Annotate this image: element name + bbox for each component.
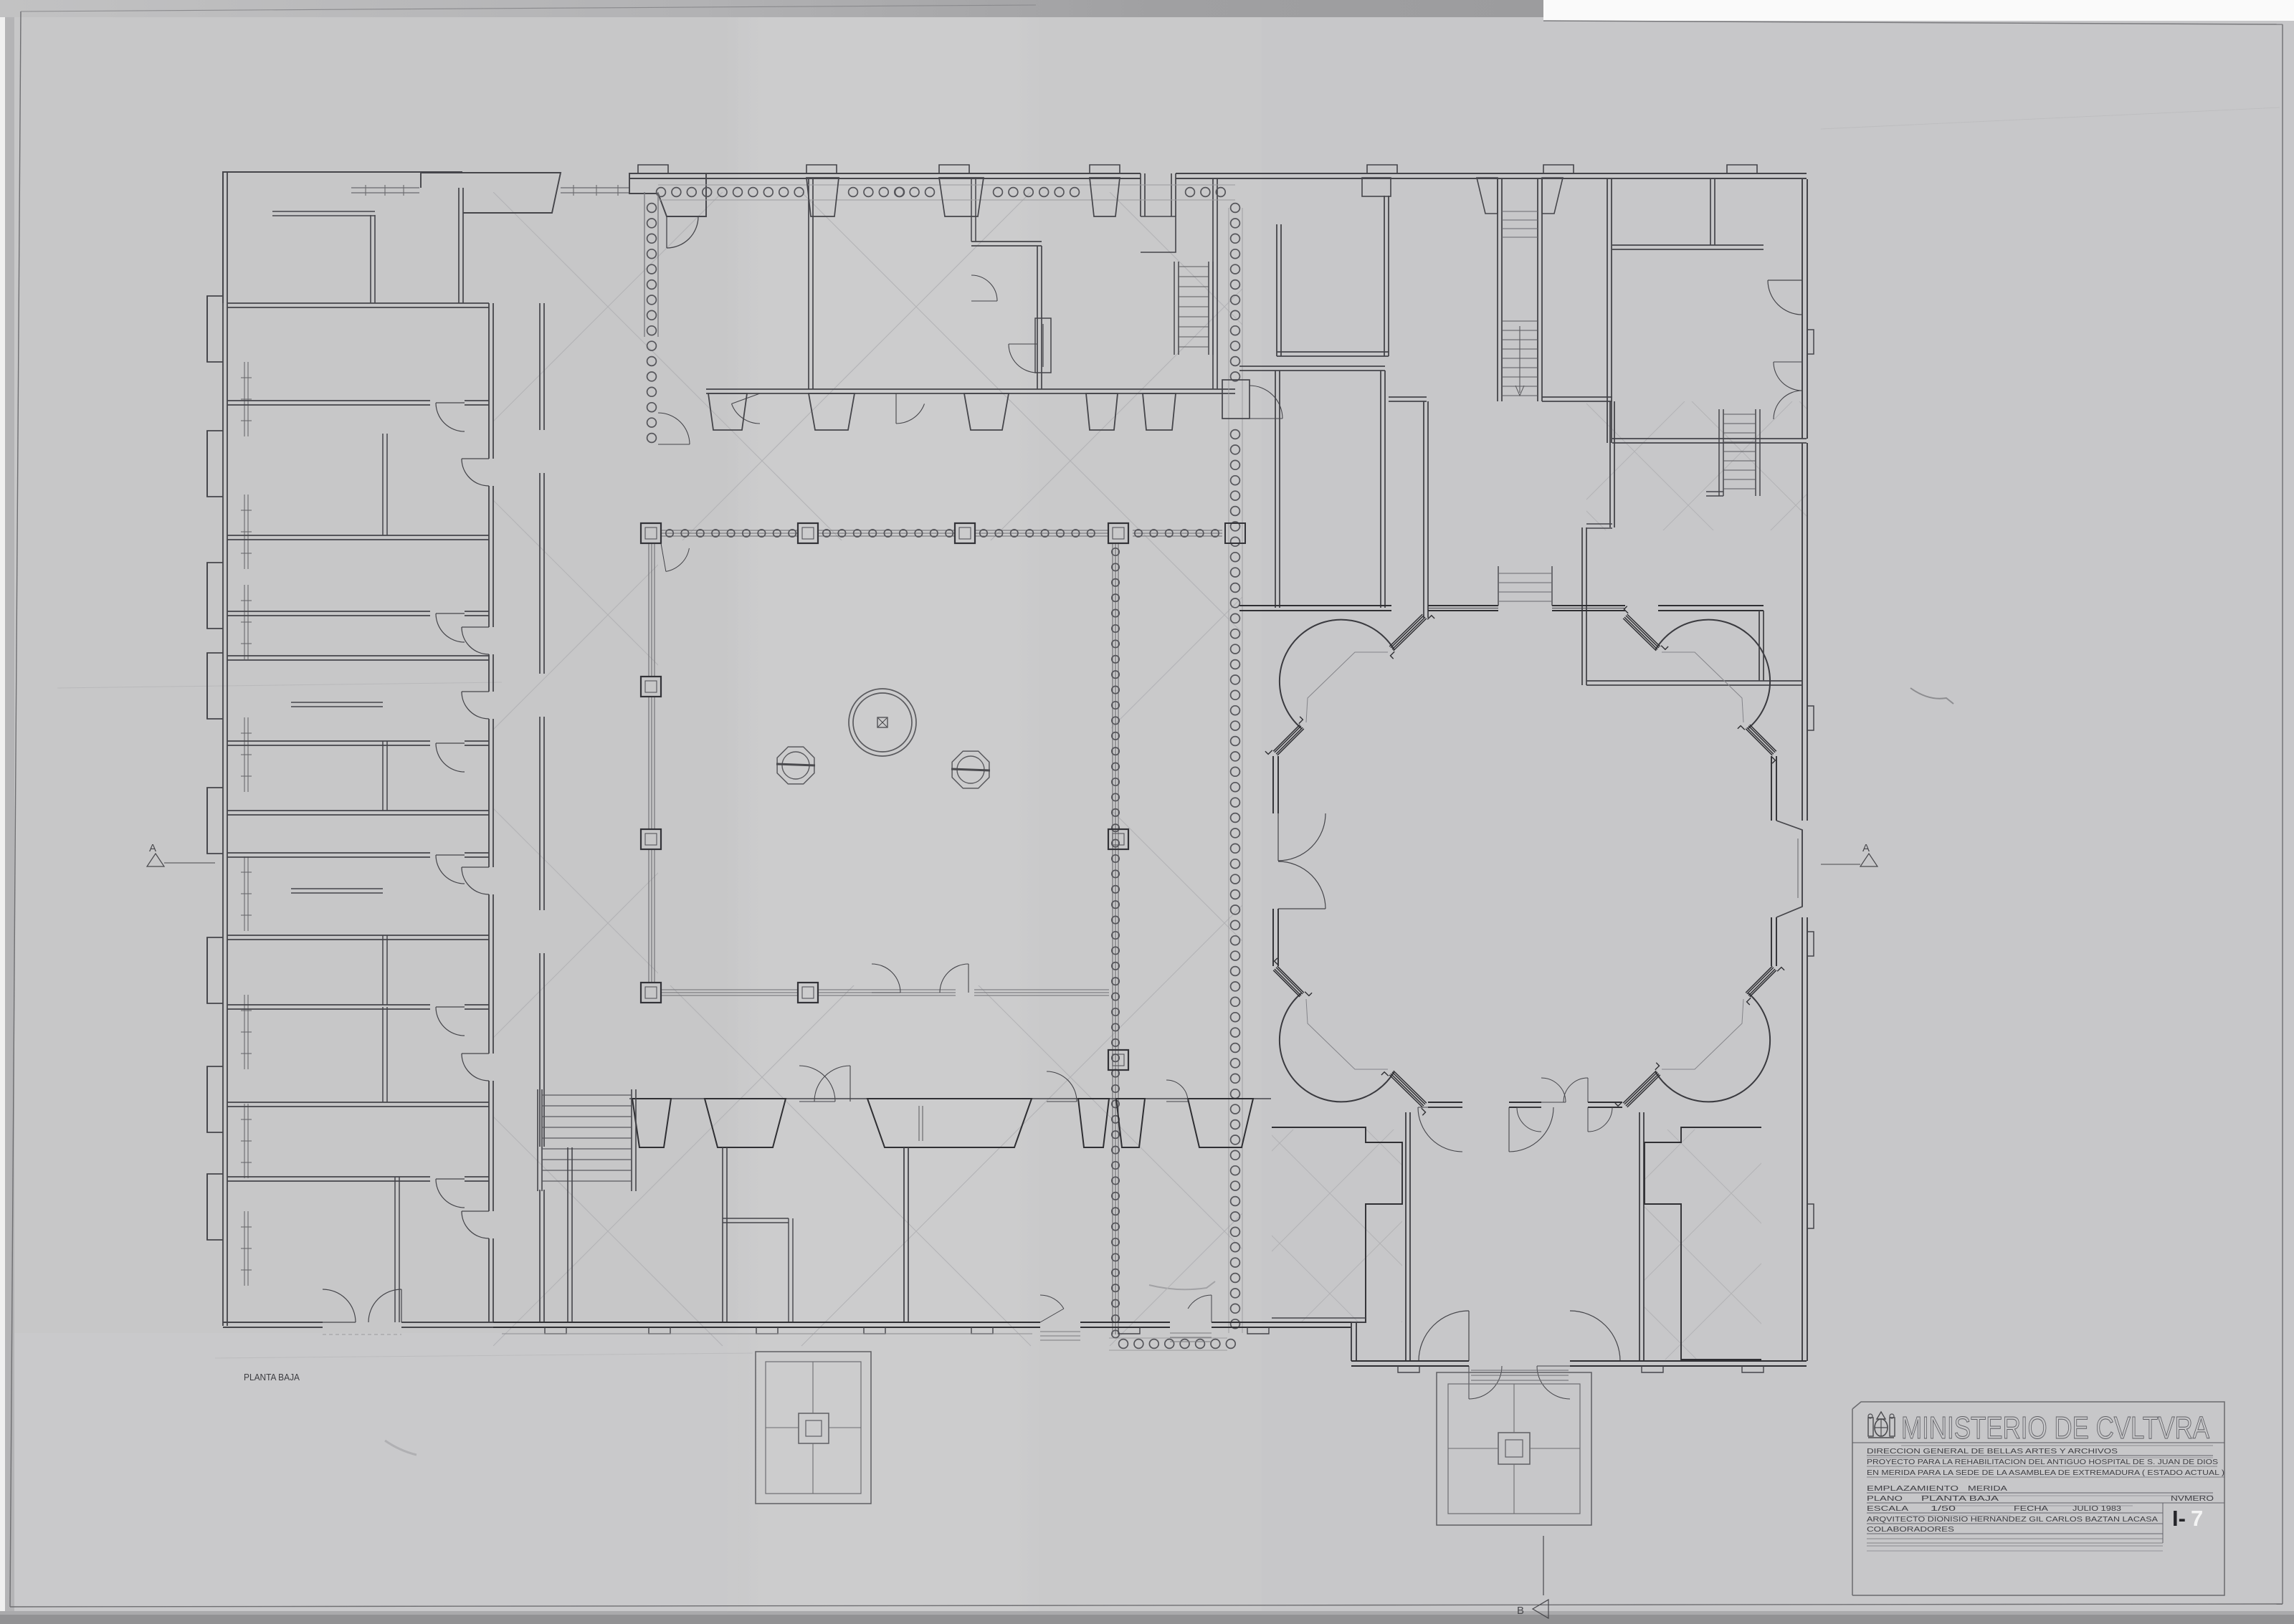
svg-text:ESCALA: ESCALA <box>1867 1504 1908 1513</box>
svg-text:PLANTA BAJA: PLANTA BAJA <box>1921 1494 1999 1503</box>
svg-text:JULIO 1983: JULIO 1983 <box>2072 1504 2121 1513</box>
svg-text:NVMERO: NVMERO <box>2171 1494 2214 1503</box>
svg-text:MINISTERIO DE CVLTVRA: MINISTERIO DE CVLTVRA <box>1901 1410 2210 1446</box>
svg-text:ARQVITECTO DIONISIO HERNANDE: ARQVITECTO DIONISIO HERNANDEZ GIL CARLOS… <box>1867 1515 2158 1524</box>
svg-text:PLANO: PLANO <box>1867 1494 1903 1503</box>
svg-text:A: A <box>1862 842 1870 854</box>
svg-text:EN MERIDA PARA LA SEDE DE LA: EN MERIDA PARA LA SEDE DE LA ASAMBLEA DE… <box>1867 1468 2224 1477</box>
svg-text:I-: I- <box>2172 1506 2186 1531</box>
svg-text:1/50: 1/50 <box>1931 1504 1956 1513</box>
svg-text:COLABORADORES: COLABORADORES <box>1867 1525 1954 1534</box>
svg-text:MERIDA: MERIDA <box>1968 1484 2007 1493</box>
svg-text:B: B <box>1517 1605 1524 1617</box>
svg-text:FECHA: FECHA <box>2014 1504 2048 1513</box>
svg-text:PROYECTO PARA LA REHABILITACI: PROYECTO PARA LA REHABILITACION DEL ANTI… <box>1867 1458 2218 1466</box>
svg-text:PLANTA BAJA: PLANTA BAJA <box>244 1372 300 1382</box>
svg-text:EMPLAZAMIENTO: EMPLAZAMIENTO <box>1867 1484 1959 1493</box>
svg-text:DIRECCION GENERAL DE BELLAS: DIRECCION GENERAL DE BELLAS ARTES Y ARCH… <box>1867 1447 2118 1456</box>
svg-text:A: A <box>149 842 156 854</box>
svg-text:7: 7 <box>2191 1506 2203 1531</box>
